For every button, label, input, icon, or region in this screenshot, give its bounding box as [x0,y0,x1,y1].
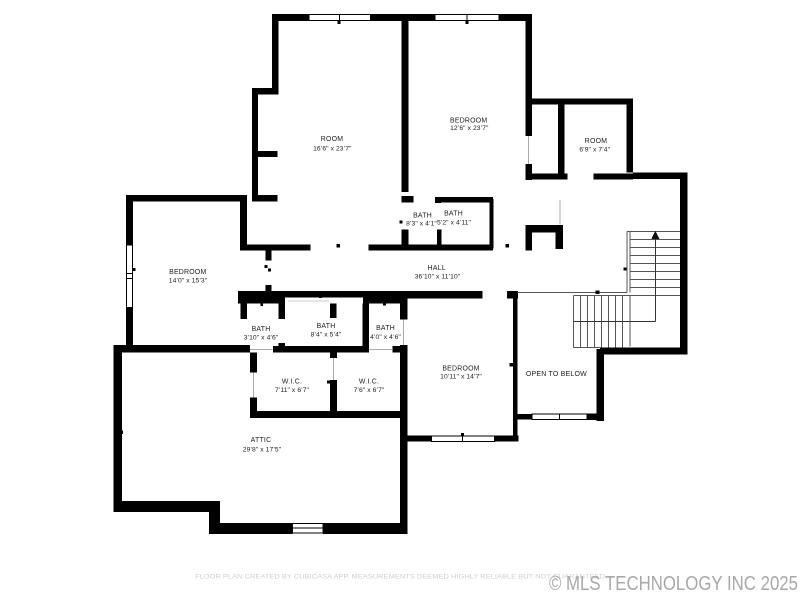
svg-text:29’8" x 17’5": 29’8" x 17’5" [243,447,282,454]
svg-text:8’3" x 4’1": 8’3" x 4’1" [406,221,437,228]
svg-text:ROOM: ROOM [321,136,343,143]
svg-text:12’6" x 23’7": 12’6" x 23’7" [450,125,489,132]
svg-text:5’2" x 4’11": 5’2" x 4’11" [437,219,472,226]
svg-text:7’6" x 6’7": 7’6" x 6’7" [354,387,385,394]
svg-text:6’9" x 7’4": 6’9" x 7’4" [579,147,610,154]
svg-text:BATH: BATH [444,211,463,218]
svg-text:14’0" x 15’3": 14’0" x 15’3" [169,277,208,284]
svg-text:BEDROOM: BEDROOM [442,366,479,373]
svg-text:HALL: HALL [428,265,446,272]
svg-text:BATH: BATH [376,325,395,332]
svg-text:36’10" x 11’10": 36’10" x 11’10" [415,274,461,281]
svg-text:10’11" x 14’7": 10’11" x 14’7" [440,374,482,381]
svg-text:8’4" x 5’4": 8’4" x 5’4" [311,332,342,339]
svg-text:16’6" x 23’7": 16’6" x 23’7" [313,145,352,152]
svg-text:4’0" x 4’6": 4’0" x 4’6" [370,334,401,341]
svg-text:BATH: BATH [317,323,336,330]
svg-text:© MLS TECHNOLOGY INC 2025: © MLS TECHNOLOGY INC 2025 [549,573,798,595]
svg-text:OPEN TO BELOW: OPEN TO BELOW [526,371,587,378]
svg-text:BEDROOM: BEDROOM [169,269,206,276]
svg-text:W.I.C.: W.I.C. [282,379,302,386]
svg-text:FLOOR PLAN CREATED BY CUBICASA: FLOOR PLAN CREATED BY CUBICASA APP. MEAS… [195,574,607,581]
svg-text:BATH: BATH [252,326,271,333]
svg-text:ROOM: ROOM [585,138,607,145]
svg-text:W.I.C.: W.I.C. [359,379,379,386]
svg-text:BEDROOM: BEDROOM [450,118,487,125]
svg-text:3’10" x 4’6": 3’10" x 4’6" [244,335,279,342]
svg-text:ATTIC: ATTIC [251,437,272,444]
svg-text:BATH: BATH [413,213,432,220]
svg-text:7’11" x 6’7": 7’11" x 6’7" [275,387,310,394]
